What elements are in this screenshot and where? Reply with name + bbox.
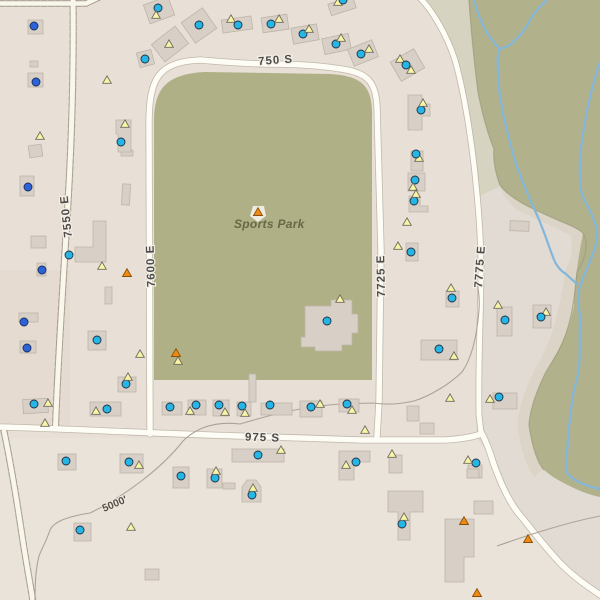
svg-text:7725 E: 7725 E [375,255,388,298]
svg-text:7600 E: 7600 E [145,244,158,287]
svg-text:Sports Park: Sports Park [234,217,306,231]
svg-text:750 S: 750 S [258,54,294,68]
svg-text:975 S: 975 S [245,431,280,444]
